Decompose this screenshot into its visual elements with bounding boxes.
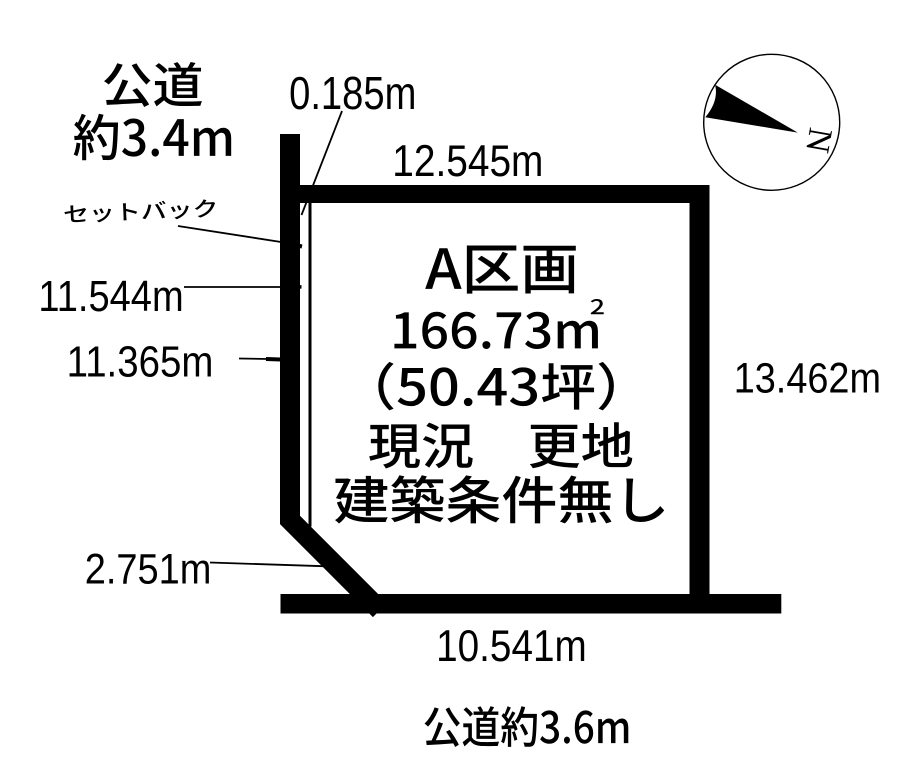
svg-text:11.544m: 11.544m	[38, 272, 183, 321]
svg-text:12.545m: 12.545m	[392, 136, 543, 186]
svg-text:N: N	[798, 125, 839, 156]
svg-text:13.462m: 13.462m	[734, 353, 881, 402]
svg-text:2.751m: 2.751m	[85, 544, 212, 593]
svg-text:11.365m: 11.365m	[67, 337, 214, 386]
svg-text:10.541m: 10.541m	[436, 620, 587, 670]
svg-text:0.185m: 0.185m	[289, 67, 416, 119]
